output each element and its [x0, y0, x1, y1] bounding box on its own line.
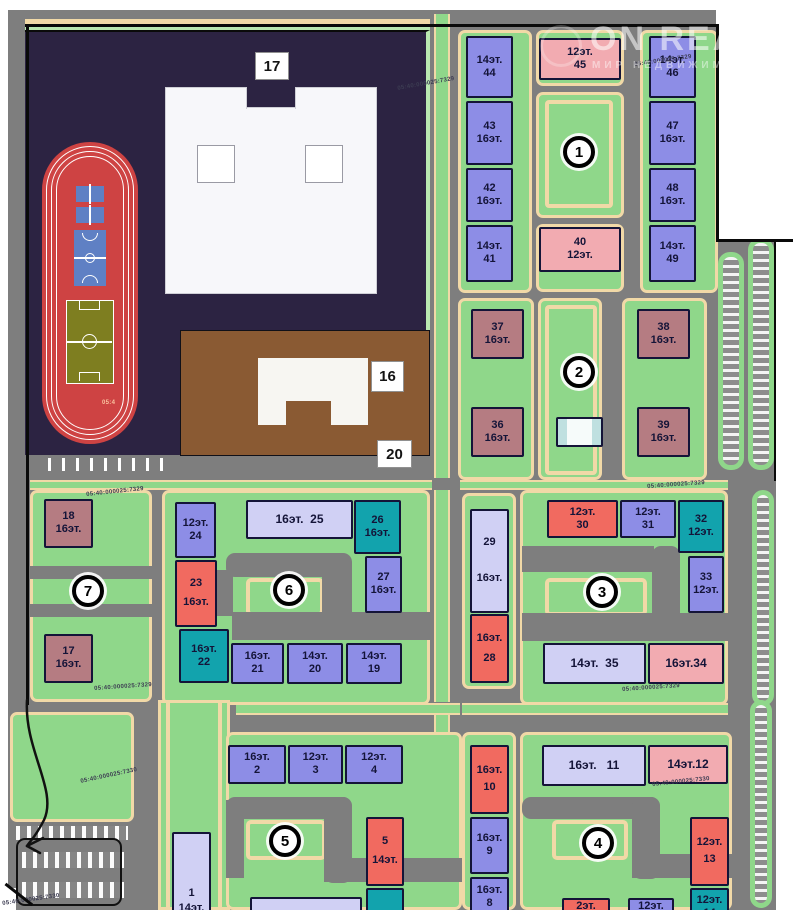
building-11[interactable]: 16эт. 11 [542, 745, 646, 786]
building-34[interactable]: 16эт.34 [648, 643, 724, 684]
building-33[interactable]: 3312эт. [688, 556, 724, 613]
school-parcel [25, 30, 430, 455]
building-label: 12эт. [688, 527, 714, 539]
quarter-badge-6: 6 [273, 574, 305, 606]
building-label: 45 [574, 60, 586, 72]
building-label: 28 [483, 653, 495, 665]
site-label-16: 16 [371, 361, 404, 392]
building-4[interactable]: 12эт.4 [345, 745, 403, 784]
building-label: 46 [666, 68, 678, 80]
basketball-court-icon [74, 230, 106, 286]
school-courtyard-left [197, 145, 235, 183]
building-label: 14эт. [477, 55, 503, 67]
building-6[interactable] [366, 888, 404, 910]
site-boundary [774, 239, 776, 481]
building-label: 16эт.34 [665, 657, 706, 670]
building-label: 8 [486, 898, 492, 910]
building-label: 43 [483, 121, 495, 133]
quarter-badge-5: 5 [269, 825, 301, 857]
building-20[interactable]: 14эт.20 [287, 643, 343, 684]
building-31[interactable]: 12эт.31 [620, 500, 676, 538]
building-label: 12эт. [638, 901, 664, 910]
quarter-badge-3: 3 [586, 576, 618, 608]
building-label: 16эт. [660, 134, 686, 146]
building-label: 16эт. [660, 196, 686, 208]
building-label: 16эт. [191, 644, 217, 656]
building-label: 16эт. [365, 528, 391, 540]
site-label-17: 17 [255, 52, 289, 80]
kindergarten-wing [258, 401, 286, 425]
building-23[interactable]: 2316эт. [175, 560, 217, 627]
building-label: 16эт. [245, 651, 271, 663]
building-22[interactable]: 16эт.22 [179, 629, 229, 683]
building-label: 38 [657, 322, 669, 334]
building-label: 22 [198, 657, 210, 669]
site-boundary [25, 24, 719, 27]
building-label: 20 [309, 664, 321, 676]
building-label: 14эт. 35 [571, 657, 619, 670]
building-2[interactable]: 16эт.2 [228, 745, 286, 784]
building-label: 42 [483, 183, 495, 195]
kindergarten-building[interactable] [258, 358, 368, 401]
building-45[interactable]: 12эт.45 [539, 38, 621, 80]
building-label: 4 [371, 765, 377, 777]
unmapped-area [716, 0, 793, 242]
school-courtyard-right [305, 145, 343, 183]
building-26[interactable]: 2616эт. [354, 500, 401, 554]
building-38[interactable]: 3816эт. [637, 309, 690, 359]
building-label: 36 [491, 420, 503, 432]
site-boundary [716, 239, 793, 242]
building-label: 16эт. [651, 335, 677, 347]
building-24[interactable]: 12эт.24 [175, 502, 216, 558]
building-label: 5 [382, 836, 388, 848]
building-label: 16эт. [477, 765, 503, 777]
volleyball-court-icon [76, 186, 104, 202]
building-label: 16эт. [485, 335, 511, 347]
building-label: 33 [700, 572, 712, 584]
building-label: 12эт. [183, 518, 209, 530]
building-label: 41 [483, 254, 495, 266]
road-q3 [522, 613, 728, 641]
building-37[interactable]: 3716эт. [471, 309, 524, 359]
school-wing-left [165, 87, 247, 109]
kindergarten-wing [331, 401, 368, 425]
building-label: 24 [189, 531, 201, 543]
site-label-20: 20 [377, 440, 412, 468]
building-49[interactable]: 14эт.49 [649, 225, 696, 282]
building-label: 40 [574, 237, 586, 249]
building-label: 12эт. [697, 837, 723, 849]
parking-strip [750, 700, 772, 908]
building-label: 32 [695, 514, 707, 526]
quarter-badge-7: 7 [72, 575, 104, 607]
building-19[interactable]: 14эт.19 [346, 643, 402, 684]
quarter-badge-2: 2 [563, 356, 595, 388]
building-35[interactable]: 14эт. 35 [543, 643, 646, 684]
building-label: 16эт. [56, 659, 82, 671]
building-8[interactable]: 16эт.8 [470, 877, 509, 910]
building-14[interactable]: 12эт.14 [690, 888, 729, 910]
building-label: 29 [483, 537, 495, 549]
building-30[interactable]: 12эт.30 [547, 500, 618, 538]
building-label: 14эт. [179, 903, 205, 910]
building-13[interactable]: 12эт.13 [690, 817, 729, 886]
building-36[interactable]: 3616эт. [471, 407, 524, 457]
kindergarten-parcel [180, 330, 430, 456]
road-q6 [217, 570, 233, 616]
building-29[interactable]: 2916эт. [470, 509, 509, 613]
building-label: 12эт. [635, 507, 661, 519]
building-label: 26 [371, 515, 383, 527]
stadium-track[interactable] [42, 142, 138, 444]
path-stripe [218, 703, 222, 907]
building-label: 13 [703, 854, 715, 866]
building-label: 10 [483, 782, 495, 794]
quarter-badge-1: 1 [563, 136, 595, 168]
building-3[interactable]: 12эт.3 [288, 745, 343, 784]
building-label: 16эт. [477, 885, 503, 897]
parking-ticks [48, 458, 174, 471]
building-40[interactable]: 4012эт. [539, 227, 621, 272]
building-label: 12эт. [567, 47, 593, 59]
building-label: 12эт. [570, 507, 596, 519]
building-label: 12эт. [693, 585, 719, 597]
volleyball-court-icon [76, 207, 104, 223]
building-16[interactable]: 12эт. [628, 898, 674, 910]
building-label: 47 [666, 121, 678, 133]
building-label: 16эт. [477, 633, 503, 645]
road-q3 [522, 546, 654, 572]
building-label: 16эт. [477, 196, 503, 208]
building-label: 2 [254, 765, 260, 777]
football-field-icon [66, 300, 114, 384]
building-46[interactable]: 14эт.46 [649, 36, 696, 98]
building-label: 16эт. [244, 752, 270, 764]
building-25[interactable]: 16эт. 25 [246, 500, 353, 539]
building-south-a[interactable] [250, 897, 362, 910]
building-label: 21 [251, 664, 263, 676]
parking-strip [752, 490, 774, 706]
building-10[interactable]: 16эт.10 [470, 745, 509, 814]
school-wing-right [295, 87, 377, 109]
building-community[interactable] [556, 417, 603, 447]
road-median [434, 490, 450, 702]
building-label: 14эт. [477, 241, 503, 253]
building-1[interactable]: 114эт. [172, 832, 211, 910]
building-label: 19 [368, 664, 380, 676]
building-label: 14эт. [660, 241, 686, 253]
building-label: 16эт. [477, 573, 503, 585]
courtyard-path [545, 305, 597, 475]
building-label: 17 [62, 646, 74, 658]
building-label: 16эт. [477, 833, 503, 845]
courtyard-q2 [538, 298, 602, 480]
building-label: 16эт. [477, 134, 503, 146]
site-boundary [26, 25, 29, 705]
building-44[interactable]: 14эт.44 [466, 36, 513, 98]
building-label: 23 [190, 578, 202, 590]
building-43[interactable]: 4316эт. [466, 101, 513, 165]
parking-strip [718, 252, 744, 470]
building-label: 16эт. [651, 433, 677, 445]
building-label: 12эт. [567, 250, 593, 262]
building-label: 2эт. [576, 901, 596, 910]
cadastral-number: 05:4 [102, 400, 115, 406]
building-47[interactable]: 4716эт. [649, 101, 696, 165]
building-label: 14эт. [361, 651, 387, 663]
building-label: 16эт. [371, 585, 397, 597]
building-5[interactable]: 514эт. [366, 817, 404, 886]
path-stripe [166, 703, 170, 907]
building-label: 39 [657, 420, 669, 432]
building-label: 12эт. [361, 752, 387, 764]
building-label: 1 [188, 888, 194, 900]
building-17[interactable]: 1716эт. [44, 634, 93, 683]
building-21[interactable]: 16эт.21 [231, 643, 284, 684]
building-9[interactable]: 16эт.9 [470, 817, 509, 874]
building-label: 16эт. [485, 433, 511, 445]
building-27[interactable]: 2716эт. [365, 556, 402, 613]
building-48[interactable]: 4816эт. [649, 168, 696, 222]
road-median [30, 480, 432, 490]
site-boundary [716, 25, 719, 241]
building-28[interactable]: 16эт.28 [470, 614, 509, 683]
building-label: 14эт. [372, 855, 398, 867]
building-label: 44 [483, 68, 495, 80]
building-label: 27 [377, 572, 389, 584]
building-label: 14эт.12 [667, 758, 708, 771]
building-39[interactable]: 3916эт. [637, 407, 690, 457]
building-label: 18 [62, 511, 74, 523]
building-label: 48 [666, 183, 678, 195]
building-label: 37 [491, 322, 503, 334]
building-label: 31 [642, 520, 654, 532]
road-q6 [232, 612, 432, 640]
building-15[interactable]: 2эт. [562, 898, 610, 910]
building-label: 16эт. [183, 597, 209, 609]
school-building[interactable] [165, 107, 377, 294]
building-label: 12эт. [697, 895, 723, 907]
building-18[interactable]: 1816эт. [44, 499, 93, 548]
building-label: 9 [486, 846, 492, 858]
building-label: 3 [312, 765, 318, 777]
hand-drawn-arrow [0, 680, 140, 910]
building-42[interactable]: 4216эт. [466, 168, 513, 222]
building-label: 16эт. 11 [569, 759, 620, 772]
building-label: 30 [576, 520, 588, 532]
building-32[interactable]: 3212эт. [678, 500, 724, 553]
building-label: 16эт. [56, 524, 82, 536]
building-label: 16эт. 25 [276, 513, 324, 526]
building-label: 12эт. [303, 752, 329, 764]
quarter-badge-4: 4 [582, 827, 614, 859]
residential-master-plan: ON REALT МИР НЕДВИЖИМОСТИ 14эт.444316эт.… [0, 0, 793, 910]
building-label: 49 [666, 254, 678, 266]
parking-strip [748, 238, 774, 470]
building-41[interactable]: 14эт.41 [466, 225, 513, 282]
building-label: 14эт. [302, 651, 328, 663]
